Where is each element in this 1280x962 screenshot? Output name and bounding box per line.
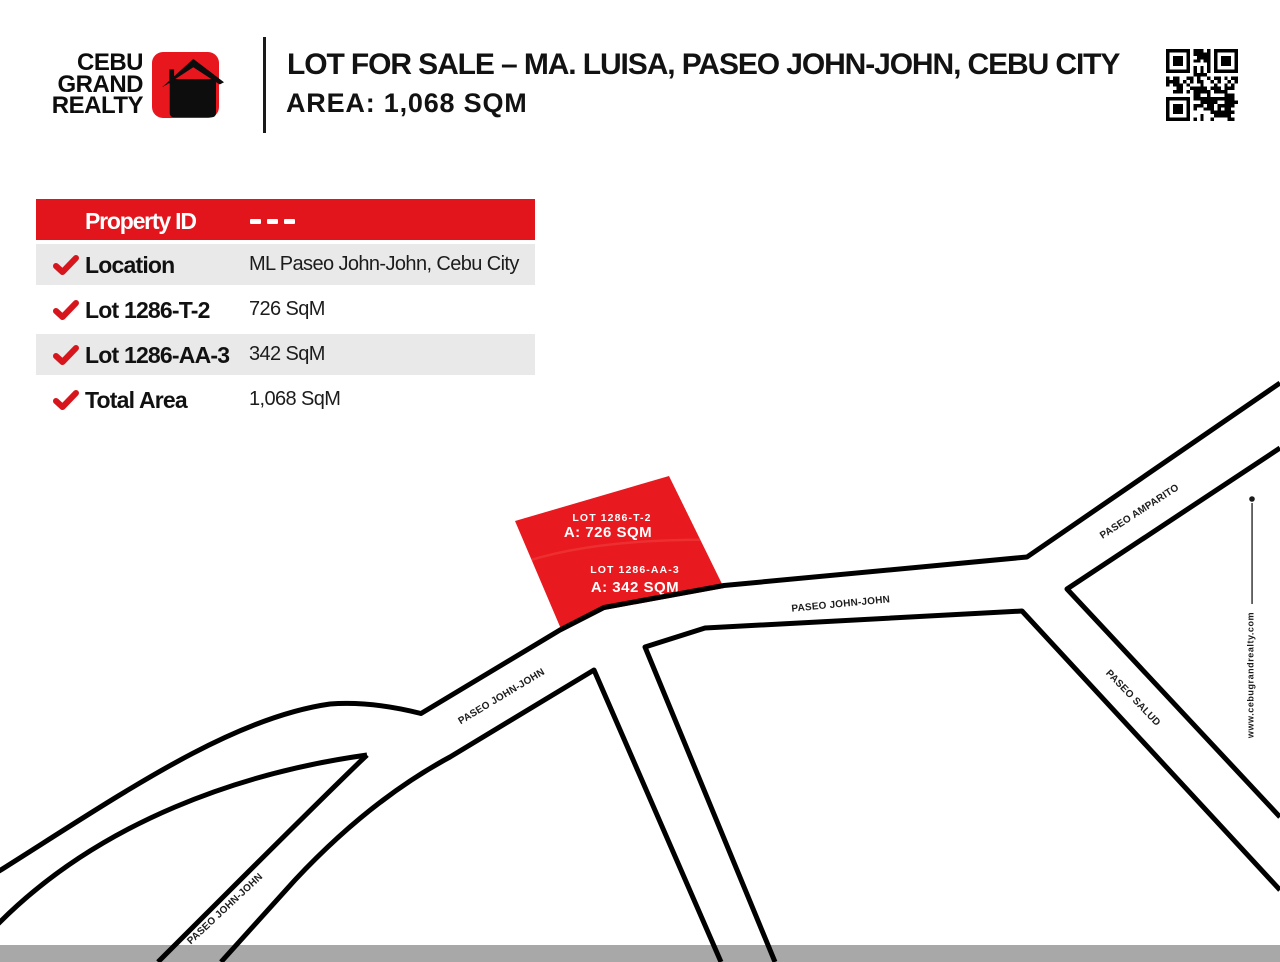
svg-text:PASEO JOHN-JOHN: PASEO JOHN-JOHN: [456, 667, 546, 727]
svg-text:PASEO JOHN-JOHN: PASEO JOHN-JOHN: [185, 871, 265, 947]
svg-text:A: 726 SQM: A: 726 SQM: [564, 524, 652, 541]
svg-text:PASEO AMPARITO: PASEO AMPARITO: [1098, 482, 1181, 541]
svg-text:LOT 1286-T-2: LOT 1286-T-2: [572, 512, 651, 524]
svg-text:A: 342 SQM: A: 342 SQM: [591, 579, 679, 596]
svg-text:PASEO SALUD: PASEO SALUD: [1103, 668, 1162, 729]
svg-text:PASEO JOHN-JOHN: PASEO JOHN-JOHN: [791, 594, 891, 614]
svg-text:LOT 1286-AA-3: LOT 1286-AA-3: [590, 564, 680, 576]
svg-text:www.cebugrandrealty.com: www.cebugrandrealty.com: [1245, 612, 1255, 739]
